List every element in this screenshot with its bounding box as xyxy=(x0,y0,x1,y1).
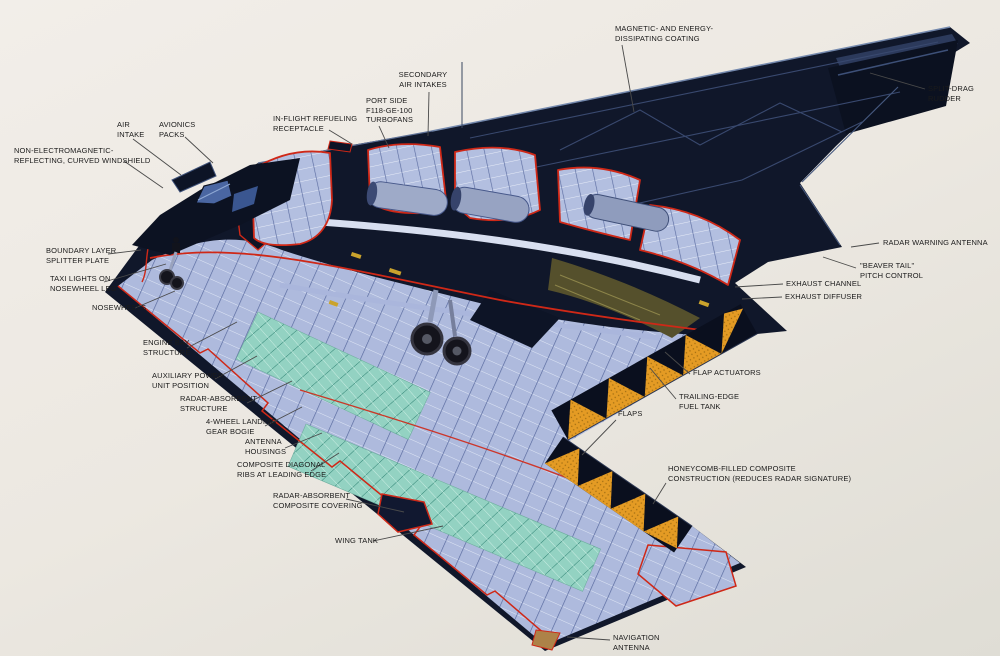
callout-boundary-layer-splitter-plate: BOUNDARY LAYER SPLITTER PLATE xyxy=(46,246,116,265)
callout-in-flight-refueling-receptacle: IN-FLIGHT REFUELING RECEPTACLE xyxy=(273,114,357,133)
callout-antenna-housings: ANTENNA HOUSINGS xyxy=(245,437,286,456)
callout-split-drag-rudder: SPLIT-DRAG RUDDER xyxy=(928,84,1000,103)
callout-avionics-packs: AVIONICS PACKS xyxy=(159,120,195,139)
leader-beaver-tail-pitch-control xyxy=(823,257,856,268)
callout-port-side-turbofans: PORT SIDE F118-GE-100 TURBOFANS xyxy=(366,96,413,125)
leader-radar-warning-antenna xyxy=(851,243,879,247)
callout-taxi-lights: TAXI LIGHTS ON NOSEWHEEL LEG xyxy=(50,274,117,293)
leader-exhaust-channel xyxy=(735,284,783,287)
aircraft-cutaway-illustration xyxy=(0,0,1000,656)
callout-magnetic-energy-dissipating-coating: MAGNETIC- AND ENERGY- DISSIPATING COATIN… xyxy=(615,24,713,43)
b2-cutaway-page: { "figure": { "subject": "B-2 stealth bo… xyxy=(0,0,1000,656)
callout-radar-absorbent-structure: RADAR-ABSORBENT STRUCTURE xyxy=(180,394,257,413)
callout-radar-absorbent-covering: RADAR-ABSORBENT COMPOSITE COVERING xyxy=(273,491,363,510)
diagram-stage: MAGNETIC- AND ENERGY- DISSIPATING COATIN… xyxy=(0,0,1000,656)
leader-honeycomb-composite xyxy=(653,483,666,504)
callout-navigation-antenna: NAVIGATION ANTENNA xyxy=(613,633,660,652)
callout-auxiliary-power-unit: AUXILIARY POWER UNIT POSITION xyxy=(152,371,223,390)
callout-air-intake: AIR INTAKE xyxy=(117,120,144,139)
callout-secondary-air-intakes: SECONDARY AIR INTAKES xyxy=(399,70,448,89)
leader-curved-windshield xyxy=(124,161,163,188)
callout-exhaust-diffuser: EXHAUST DIFFUSER xyxy=(785,292,862,302)
navigation-antenna-fairing xyxy=(532,630,560,650)
callout-radar-warning-antenna: RADAR WARNING ANTENNA xyxy=(883,238,988,248)
callout-exhaust-channel: EXHAUST CHANNEL xyxy=(786,279,861,289)
callout-trailing-edge-fuel-tank: TRAILING-EDGE FUEL TANK xyxy=(679,392,739,411)
callout-landing-gear-bogie: 4-WHEEL LANDING GEAR BOGIE xyxy=(206,417,277,436)
callout-flaps: FLAPS xyxy=(618,409,642,419)
callout-beaver-tail-pitch-control: "BEAVER TAIL" PITCH CONTROL xyxy=(860,261,923,280)
callout-composite-diagonal-ribs: COMPOSITE DIAGONAL RIBS AT LEADING EDGE xyxy=(237,460,326,479)
callout-flap-actuators: FLAP ACTUATORS xyxy=(693,368,761,378)
leader-secondary-air-intakes xyxy=(428,92,429,136)
callout-engine-bay-structure: ENGINE BAY STRUCTURE xyxy=(143,338,191,357)
leader-avionics-packs xyxy=(185,137,213,163)
callout-honeycomb-composite: HONEYCOMB-FILLED COMPOSITE CONSTRUCTION … xyxy=(668,464,851,483)
callout-nosewheels: NOSEWHEELS xyxy=(92,303,146,313)
callout-wing-tank: WING TANK xyxy=(335,536,378,546)
pilot-figure xyxy=(173,237,179,243)
callout-curved-windshield: NON-ELECTROMAGNETIC- REFLECTING, CURVED … xyxy=(14,146,150,165)
